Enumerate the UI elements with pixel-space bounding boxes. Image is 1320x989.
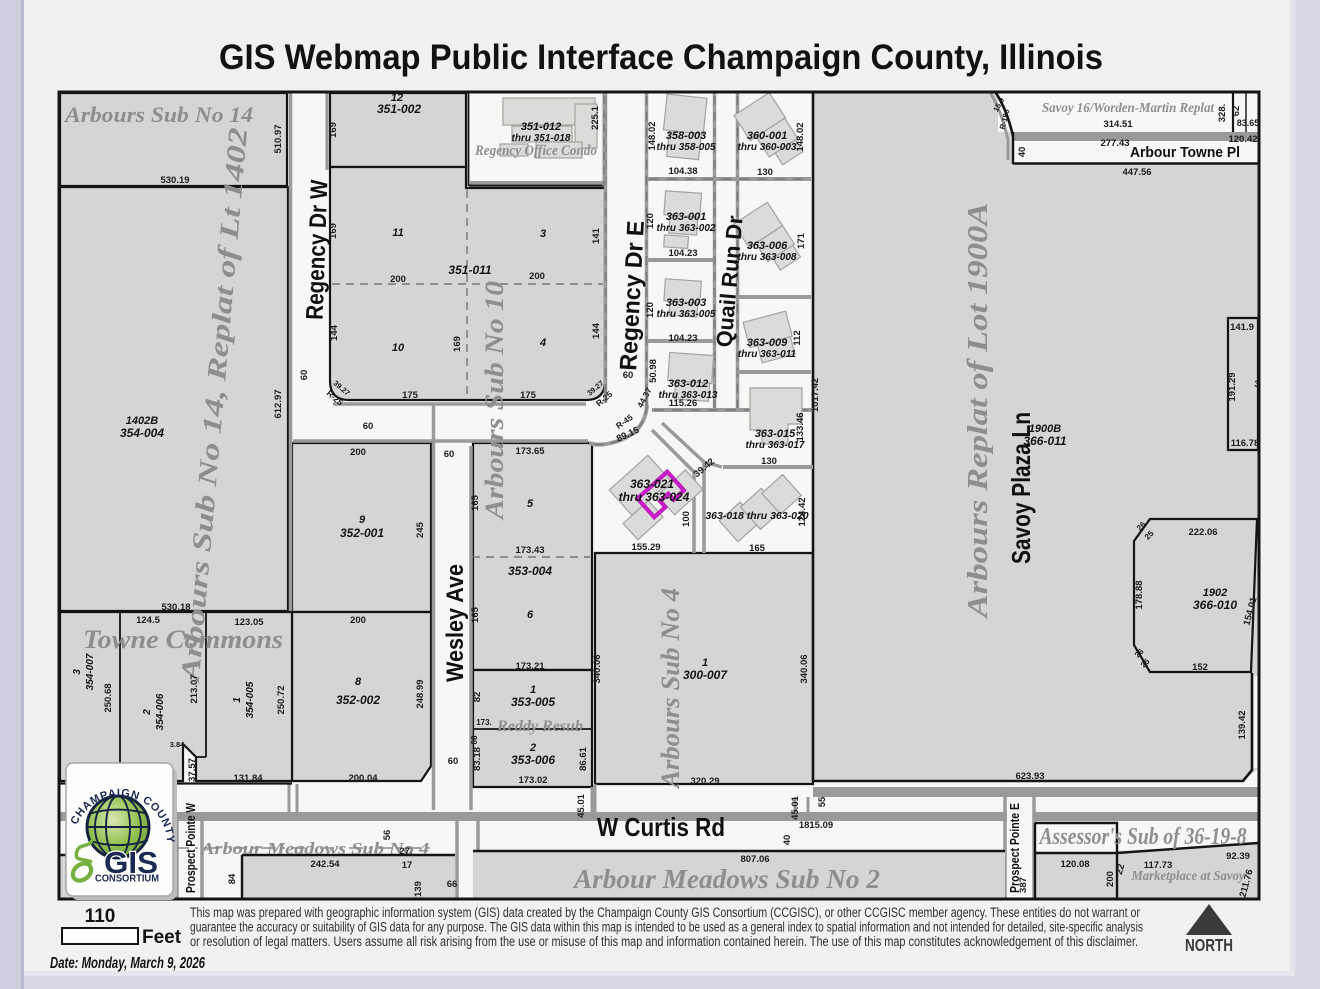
svg-text:130: 130 bbox=[761, 456, 777, 467]
svg-text:120.42: 120.42 bbox=[1228, 134, 1257, 145]
svg-text:117.73: 117.73 bbox=[1144, 860, 1173, 871]
svg-text:173.: 173. bbox=[476, 718, 492, 727]
svg-text:Arbours Sub No 4: Arbours Sub No 4 bbox=[656, 588, 685, 790]
svg-text:100: 100 bbox=[681, 511, 692, 527]
svg-text:354-007: 354-007 bbox=[85, 653, 96, 690]
svg-text:1815.09: 1815.09 bbox=[799, 820, 833, 831]
svg-text:213.07: 213.07 bbox=[189, 674, 200, 703]
svg-text:363-012: 363-012 bbox=[668, 378, 708, 390]
svg-text:363-015: 363-015 bbox=[755, 428, 796, 440]
svg-text:141.9: 141.9 bbox=[1230, 322, 1254, 333]
svg-text:360-001: 360-001 bbox=[747, 130, 787, 142]
svg-text:NORTH: NORTH bbox=[1185, 935, 1233, 955]
svg-text:340.06: 340.06 bbox=[799, 654, 810, 683]
svg-text:358-003: 358-003 bbox=[666, 130, 706, 142]
svg-text:353-005: 353-005 bbox=[511, 695, 555, 709]
svg-text:175: 175 bbox=[520, 390, 537, 401]
svg-text:124.42: 124.42 bbox=[797, 497, 808, 526]
svg-text:363-006: 363-006 bbox=[747, 240, 788, 252]
svg-text:08: 08 bbox=[470, 735, 479, 744]
svg-text:Arbours Sub No 14: Arbours Sub No 14 bbox=[63, 102, 253, 127]
svg-text:Regency Dr W: Regency Dr W bbox=[302, 179, 334, 320]
svg-text:387: 387 bbox=[1018, 877, 1029, 893]
svg-text:Assessor's Sub of 36-19-8: Assessor's Sub of 36-19-8 bbox=[1038, 824, 1247, 850]
svg-text:200: 200 bbox=[529, 271, 545, 282]
svg-text:277.43: 277.43 bbox=[1100, 138, 1129, 149]
svg-text:173.43: 173.43 bbox=[515, 545, 544, 556]
svg-text:165: 165 bbox=[470, 494, 481, 511]
svg-text:144: 144 bbox=[591, 322, 602, 339]
svg-text:40: 40 bbox=[1017, 147, 1028, 158]
svg-text:9: 9 bbox=[359, 514, 366, 526]
svg-text:144: 144 bbox=[329, 324, 340, 341]
svg-text:222.06: 222.06 bbox=[1188, 527, 1217, 538]
svg-text:366-010: 366-010 bbox=[1193, 598, 1237, 612]
svg-text:148.02: 148.02 bbox=[795, 122, 806, 151]
svg-text:173.65: 173.65 bbox=[515, 446, 545, 457]
svg-text:1017.42: 1017.42 bbox=[810, 378, 821, 412]
svg-text:thru 363-002: thru 363-002 bbox=[657, 223, 716, 234]
svg-text:328.: 328. bbox=[1217, 104, 1228, 123]
svg-text:130: 130 bbox=[757, 167, 773, 178]
svg-text:3.84: 3.84 bbox=[170, 740, 185, 749]
svg-text:Arbour Meadows Sub No 4: Arbour Meadows Sub No 4 bbox=[200, 839, 429, 858]
svg-text:530.19: 530.19 bbox=[160, 175, 189, 186]
svg-text:169: 169 bbox=[452, 336, 463, 352]
svg-text:or resolution of legal matters: or resolution of legal matters. Users as… bbox=[190, 934, 1138, 949]
svg-text:thru 363-008: thru 363-008 bbox=[738, 252, 797, 263]
svg-text:112: 112 bbox=[792, 330, 803, 345]
svg-text:120: 120 bbox=[645, 213, 656, 229]
svg-text:191.29: 191.29 bbox=[1227, 372, 1238, 401]
svg-text:245: 245 bbox=[415, 521, 426, 538]
svg-text:169: 169 bbox=[328, 223, 339, 239]
svg-text:This map was prepared with geo: This map was prepared with geographic in… bbox=[190, 905, 1140, 920]
svg-text:363-001: 363-001 bbox=[666, 211, 706, 223]
svg-text:86.61: 86.61 bbox=[578, 746, 589, 770]
svg-text:120.08: 120.08 bbox=[1060, 859, 1089, 870]
svg-text:173.02: 173.02 bbox=[518, 775, 547, 786]
svg-text:60: 60 bbox=[363, 421, 374, 432]
svg-text:200: 200 bbox=[390, 274, 406, 285]
svg-text:124.5: 124.5 bbox=[136, 615, 160, 626]
svg-text:Reddy Resub: Reddy Resub bbox=[496, 718, 583, 735]
svg-text:141: 141 bbox=[591, 227, 602, 244]
svg-text:115.26: 115.26 bbox=[669, 398, 698, 409]
svg-text:62: 62 bbox=[1231, 106, 1242, 117]
svg-text:510.97: 510.97 bbox=[273, 124, 284, 153]
svg-text:45.01: 45.01 bbox=[790, 795, 801, 819]
svg-text:84: 84 bbox=[227, 873, 238, 884]
svg-text:27.: 27. bbox=[399, 846, 412, 857]
svg-text:320.29: 320.29 bbox=[690, 776, 719, 787]
svg-text:200.04: 200.04 bbox=[348, 773, 378, 784]
svg-text:169: 169 bbox=[328, 122, 339, 138]
svg-text:83.65: 83.65 bbox=[1237, 118, 1260, 128]
svg-text:352-001: 352-001 bbox=[340, 526, 384, 540]
svg-text:Arbours Sub No 10: Arbours Sub No 10 bbox=[480, 281, 509, 521]
svg-text:165: 165 bbox=[470, 606, 481, 623]
svg-text:Feet: Feet bbox=[142, 927, 182, 948]
svg-text:354-006: 354-006 bbox=[155, 693, 166, 730]
svg-text:807.06: 807.06 bbox=[740, 854, 769, 865]
svg-text:45.01: 45.01 bbox=[576, 793, 587, 817]
svg-text:353-006: 353-006 bbox=[511, 753, 555, 767]
svg-text:300-007: 300-007 bbox=[683, 668, 728, 682]
svg-text:Date: Monday, March 9, 2026: Date: Monday, March 9, 2026 bbox=[50, 955, 205, 972]
svg-text:351-011: 351-011 bbox=[448, 263, 491, 277]
svg-text:60: 60 bbox=[448, 756, 459, 767]
svg-text:2: 2 bbox=[142, 709, 153, 716]
svg-text:110: 110 bbox=[85, 906, 116, 927]
svg-text:623.93: 623.93 bbox=[1015, 771, 1044, 782]
svg-text:thru 363-011: thru 363-011 bbox=[738, 349, 797, 360]
svg-text:104.38: 104.38 bbox=[668, 166, 697, 177]
svg-text:120: 120 bbox=[645, 302, 656, 318]
svg-text:Arbour Meadows Sub No 2: Arbour Meadows Sub No 2 bbox=[572, 864, 880, 894]
svg-text:Savoy 16/Worden-Martin Replat: Savoy 16/Worden-Martin Replat bbox=[1042, 100, 1215, 115]
svg-text:GIS Webmap Public Interface Ch: GIS Webmap Public Interface Champaign Co… bbox=[219, 38, 1103, 77]
svg-text:139.42: 139.42 bbox=[1237, 710, 1248, 739]
svg-text:3: 3 bbox=[540, 228, 546, 240]
svg-text:60: 60 bbox=[299, 370, 310, 381]
svg-text:366-011: 366-011 bbox=[1023, 434, 1066, 448]
svg-text:1: 1 bbox=[232, 697, 243, 703]
svg-text:178.88: 178.88 bbox=[1134, 580, 1145, 609]
svg-text:4: 4 bbox=[539, 337, 546, 349]
svg-text:Wesley Ave: Wesley Ave bbox=[442, 564, 469, 682]
svg-text:165: 165 bbox=[749, 543, 766, 554]
svg-text:Marketplace at Savoy: Marketplace at Savoy bbox=[1131, 869, 1246, 884]
svg-text:Arbour Towne Pl: Arbour Towne Pl bbox=[1130, 144, 1240, 161]
svg-text:171: 171 bbox=[796, 232, 807, 249]
svg-text:351-002: 351-002 bbox=[377, 102, 421, 116]
svg-text:thru 363-024: thru 363-024 bbox=[619, 490, 690, 504]
svg-text:116.78: 116.78 bbox=[1231, 438, 1260, 449]
svg-text:353-004: 353-004 bbox=[508, 564, 552, 578]
svg-text:thru 358-005: thru 358-005 bbox=[657, 142, 716, 153]
svg-text:56: 56 bbox=[382, 830, 393, 841]
svg-text:175: 175 bbox=[402, 390, 419, 401]
svg-text:11: 11 bbox=[392, 227, 403, 239]
svg-text:354-005: 354-005 bbox=[245, 681, 256, 718]
svg-text:37.57: 37.57 bbox=[187, 758, 198, 782]
svg-text:340.06: 340.06 bbox=[592, 654, 603, 683]
svg-text:3: 3 bbox=[72, 669, 83, 675]
svg-text:242.54: 242.54 bbox=[310, 859, 340, 870]
svg-text:104.23: 104.23 bbox=[668, 248, 697, 259]
svg-text:133.46: 133.46 bbox=[795, 412, 806, 441]
svg-text:612.97: 612.97 bbox=[273, 389, 284, 418]
svg-text:148.02: 148.02 bbox=[647, 121, 658, 150]
svg-text:Towne Commons: Towne Commons bbox=[83, 625, 283, 654]
svg-text:363-021: 363-021 bbox=[630, 477, 674, 491]
svg-text:104.23: 104.23 bbox=[668, 333, 697, 344]
svg-text:363-009: 363-009 bbox=[747, 337, 788, 349]
svg-text:363-018 thru 363-020: 363-018 thru 363-020 bbox=[705, 510, 808, 522]
svg-text:354-004: 354-004 bbox=[120, 426, 164, 440]
svg-text:225.1: 225.1 bbox=[590, 105, 601, 129]
svg-text:131.84: 131.84 bbox=[233, 773, 263, 784]
svg-text:447.56: 447.56 bbox=[1122, 167, 1151, 178]
svg-text:40: 40 bbox=[782, 835, 793, 846]
svg-text:17: 17 bbox=[402, 860, 413, 871]
svg-text:CONSORTIUM: CONSORTIUM bbox=[95, 873, 159, 885]
svg-text:66: 66 bbox=[447, 879, 458, 890]
svg-text:250.68: 250.68 bbox=[103, 683, 114, 712]
svg-text:thru 363-005: thru 363-005 bbox=[657, 309, 716, 320]
svg-text:60: 60 bbox=[444, 449, 455, 460]
svg-text:Regency Office Condo: Regency Office Condo bbox=[474, 143, 597, 159]
svg-text:248.99: 248.99 bbox=[415, 679, 426, 708]
svg-text:200: 200 bbox=[350, 615, 366, 626]
svg-text:83.18: 83.18 bbox=[472, 747, 483, 771]
svg-text:200: 200 bbox=[350, 447, 366, 458]
svg-text:152: 152 bbox=[1192, 662, 1208, 673]
svg-text:W Curtis Rd: W Curtis Rd bbox=[597, 812, 725, 842]
svg-text:155.29: 155.29 bbox=[631, 542, 660, 553]
svg-text:thru 351-018: thru 351-018 bbox=[512, 133, 571, 144]
svg-text:351-012: 351-012 bbox=[521, 121, 561, 133]
svg-text:363-003: 363-003 bbox=[666, 297, 706, 309]
svg-text:guarantee the accuracy or suit: guarantee the accuracy or suitability of… bbox=[190, 920, 1143, 935]
svg-text:139: 139 bbox=[413, 881, 424, 897]
svg-text:Prospect Pointe W: Prospect Pointe W bbox=[184, 803, 198, 893]
svg-text:55: 55 bbox=[817, 796, 828, 807]
svg-text:530.18: 530.18 bbox=[161, 602, 190, 613]
svg-text:92.39: 92.39 bbox=[1226, 851, 1250, 862]
svg-text:6: 6 bbox=[527, 609, 534, 621]
svg-text:5: 5 bbox=[527, 498, 534, 510]
svg-text:314.51: 314.51 bbox=[1103, 119, 1133, 130]
svg-text:thru 360-003: thru 360-003 bbox=[738, 142, 797, 153]
svg-text:173.21: 173.21 bbox=[515, 661, 545, 672]
svg-text:8: 8 bbox=[355, 676, 362, 688]
svg-text:82: 82 bbox=[472, 692, 483, 703]
svg-text:Arbours Replat of Lot 1900A: Arbours Replat of Lot 1900A bbox=[963, 203, 994, 620]
svg-text:123.05: 123.05 bbox=[234, 617, 264, 628]
svg-text:50.98: 50.98 bbox=[648, 359, 659, 383]
svg-text:250.72: 250.72 bbox=[276, 685, 287, 714]
svg-text:10: 10 bbox=[392, 342, 405, 354]
svg-text:60: 60 bbox=[623, 370, 634, 381]
svg-text:352-002: 352-002 bbox=[336, 693, 380, 707]
